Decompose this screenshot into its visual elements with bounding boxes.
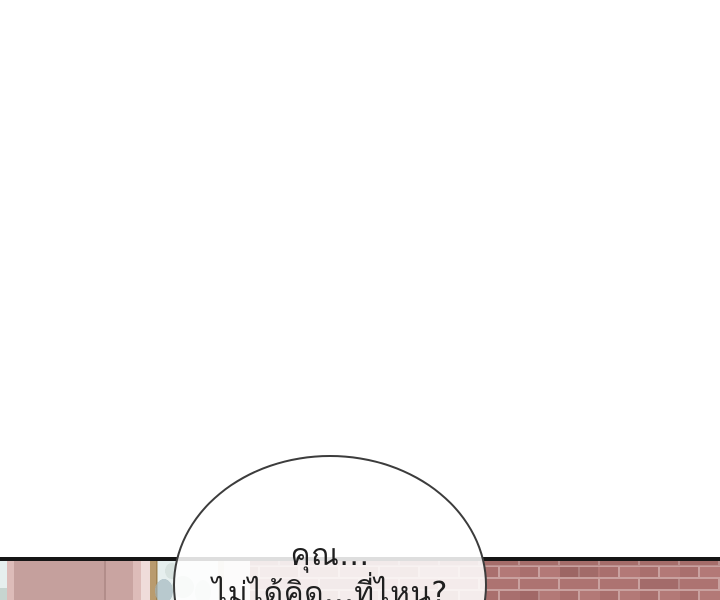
- wall-panel-rose: [14, 561, 104, 600]
- dialogue-line-2: ไม่ได้คิด...ที่ไหน?: [173, 575, 487, 600]
- wall-edge-pale: [141, 561, 150, 600]
- dialogue-text: คุณ... ไม่ได้คิด...ที่ไหน?: [173, 537, 487, 600]
- comic-page: คุณ... ไม่ได้คิด...ที่ไหน?: [0, 0, 720, 600]
- wall-panel-seam: [104, 561, 106, 600]
- window-left-foliage: [0, 588, 7, 600]
- wall-panel-rose-2: [106, 561, 133, 600]
- dialogue-line-1: คุณ...: [173, 537, 487, 575]
- wall-edge-light: [133, 561, 141, 600]
- door-frame-pink: [7, 561, 14, 600]
